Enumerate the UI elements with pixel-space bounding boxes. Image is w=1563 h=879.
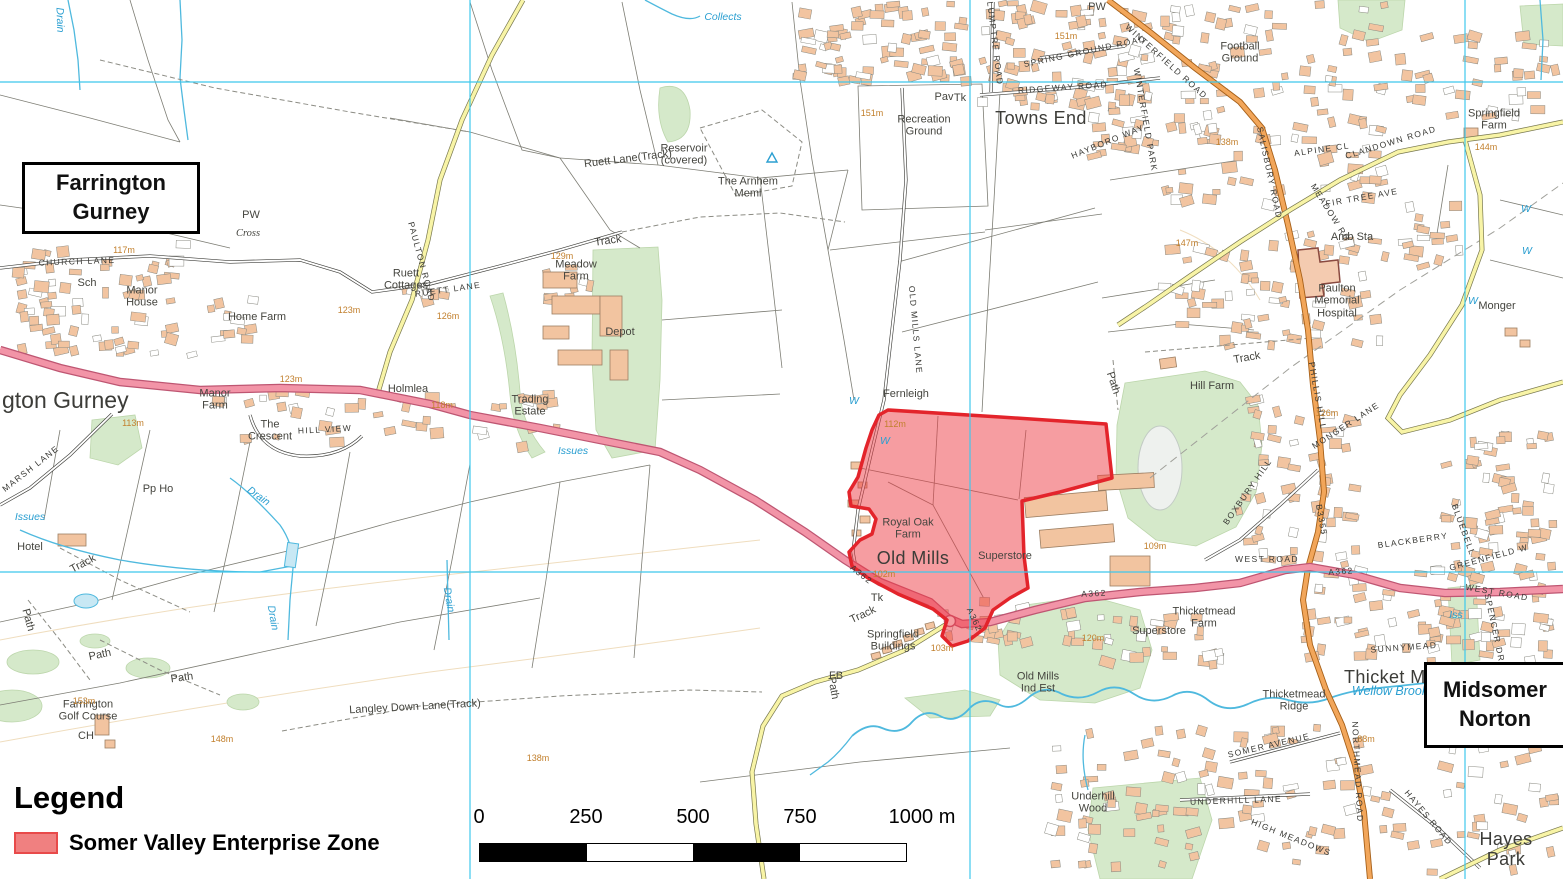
- scale-bar-segment: [800, 844, 907, 861]
- scale-tick-label: 0: [473, 806, 484, 829]
- scale-tick-label: 250: [569, 806, 602, 829]
- trig-point-icon: [767, 153, 777, 162]
- legend-item-enterprise-zone: Somer Valley Enterprise Zone: [14, 830, 380, 856]
- enterprise-zone-swatch: [14, 832, 58, 854]
- scale-bar-segment: [480, 844, 587, 861]
- drain-pond: [284, 542, 298, 567]
- enterprise-zone-label: Somer Valley Enterprise Zone: [69, 830, 380, 856]
- pond: [74, 594, 98, 608]
- legend: Legend Somer Valley Enterprise Zone: [14, 780, 380, 856]
- woodland-areas: [0, 0, 1563, 879]
- map-canvas: Towns EndOld MillsThicket MeHayes Parkgt…: [0, 0, 1563, 879]
- grid-lines: [0, 0, 1563, 879]
- scale-bar-segment: [587, 844, 694, 861]
- building-clusters: [12, 0, 1560, 875]
- scale-bar-segments: [479, 843, 907, 862]
- map-graphics: [0, 0, 1563, 879]
- midsomer-norton-title-box: Midsomer Norton: [1424, 662, 1563, 748]
- midsomer-norton-title: Midsomer Norton: [1443, 676, 1547, 733]
- legend-title: Legend: [14, 780, 380, 816]
- farrington-gurney-title-box: Farrington Gurney: [22, 162, 200, 234]
- scale-tick-label: 750: [783, 806, 816, 829]
- scale-bar-segment: [693, 844, 800, 861]
- scale-tick-label: 1000 m: [889, 806, 956, 829]
- hill-farm-pond: [1138, 426, 1182, 510]
- scale-tick-label: 500: [676, 806, 709, 829]
- farrington-gurney-title: Farrington Gurney: [56, 169, 166, 226]
